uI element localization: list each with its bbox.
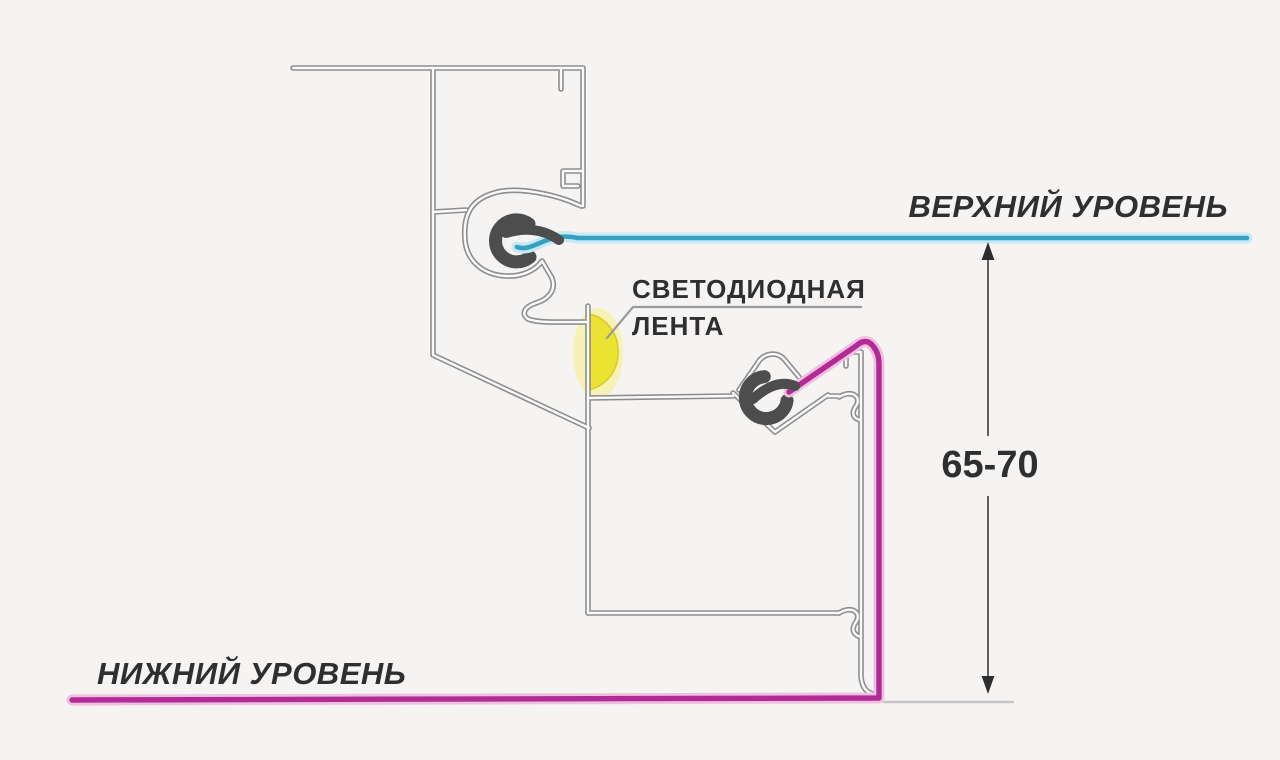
- led-strip-label-line2: ЛЕНТА: [632, 308, 866, 345]
- upper-level-line: [517, 237, 1247, 248]
- upper-clip-finger: [506, 230, 559, 240]
- dimension-label: 65-70: [928, 444, 1052, 487]
- upper-level-label: ВЕРХНИЙ УРОВЕНЬ: [898, 189, 1228, 225]
- led-strip-label: СВЕТОДИОДНАЯ ЛЕНТА: [632, 271, 866, 345]
- led-strip-label-line1: СВЕТОДИОДНАЯ: [632, 271, 866, 308]
- lower-level-label: НИЖНИЙ УРОВЕНЬ: [97, 656, 406, 692]
- profile-drawing: [0, 0, 1280, 760]
- diagram-canvas: ВЕРХНИЙ УРОВЕНЬ СВЕТОДИОДНАЯ ЛЕНТА 65-70…: [0, 0, 1280, 760]
